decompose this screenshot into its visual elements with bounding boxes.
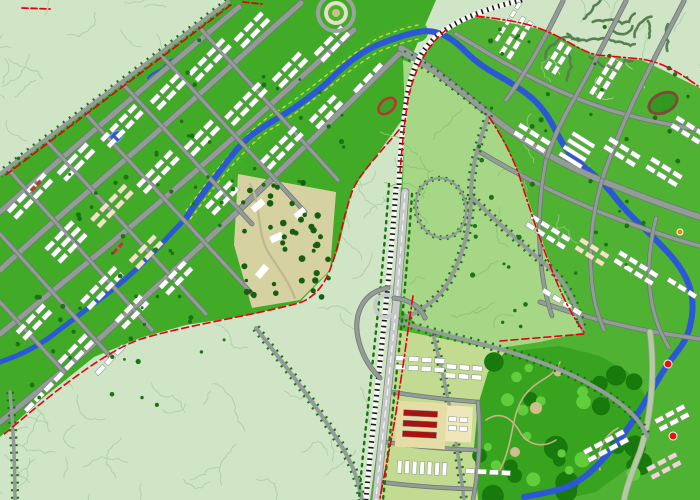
tree-icon xyxy=(299,278,305,284)
tree-icon xyxy=(479,158,484,163)
building xyxy=(404,461,409,474)
tree-icon xyxy=(342,145,345,148)
poi-marker-icon xyxy=(677,229,683,235)
tree-icon xyxy=(68,356,71,359)
tree-icon xyxy=(192,82,197,87)
tree-icon xyxy=(280,220,287,227)
tree-icon xyxy=(603,25,607,29)
tree-icon xyxy=(513,309,517,313)
tree-icon xyxy=(675,159,680,164)
tree-icon xyxy=(576,395,591,410)
tree-icon xyxy=(200,350,203,353)
tree-icon xyxy=(194,186,197,189)
tree-icon xyxy=(327,124,331,128)
map-canvas xyxy=(0,0,700,500)
tree-icon xyxy=(544,129,547,132)
tree-icon xyxy=(539,117,544,122)
tree-icon xyxy=(519,325,523,329)
tree-icon xyxy=(667,129,672,134)
building xyxy=(489,470,498,475)
tree-icon xyxy=(484,352,504,372)
tree-icon xyxy=(273,290,279,296)
tree-icon xyxy=(180,120,184,124)
building xyxy=(421,366,431,372)
tree-icon xyxy=(134,295,138,299)
tree-icon xyxy=(530,124,535,129)
tree-icon xyxy=(90,205,94,209)
building xyxy=(446,373,456,379)
building xyxy=(459,426,467,431)
tree-icon xyxy=(118,274,123,279)
tree-icon xyxy=(141,306,144,309)
tree-icon xyxy=(71,330,75,334)
tree-icon xyxy=(489,195,494,200)
tree-icon xyxy=(143,323,146,326)
tree-icon xyxy=(223,338,226,341)
tree-icon xyxy=(473,224,477,228)
tree-icon xyxy=(625,263,628,266)
tree-icon xyxy=(241,200,245,204)
tree-icon xyxy=(245,279,249,283)
tree-icon xyxy=(178,295,182,299)
boundary-snippet-topleft xyxy=(22,8,50,9)
tree-icon xyxy=(192,202,196,206)
building xyxy=(412,461,417,474)
tree-icon xyxy=(276,87,279,90)
tree-icon xyxy=(60,304,65,309)
tree-icon xyxy=(218,224,222,228)
building xyxy=(409,356,419,362)
tree-icon xyxy=(280,240,285,245)
building xyxy=(459,374,469,380)
building xyxy=(477,469,486,474)
tree-icon xyxy=(524,364,533,373)
tree-icon xyxy=(523,302,528,307)
building xyxy=(449,417,457,422)
plaza-center xyxy=(332,9,340,17)
tree-icon xyxy=(169,190,173,194)
building xyxy=(446,364,456,370)
tree-icon xyxy=(208,140,212,144)
building xyxy=(434,367,444,373)
tree-icon xyxy=(653,115,658,120)
tree-icon xyxy=(319,294,325,300)
tree-icon xyxy=(190,134,195,139)
tree-icon xyxy=(686,95,690,99)
tree-icon xyxy=(248,289,252,293)
building xyxy=(472,366,482,372)
tree-icon xyxy=(299,116,303,120)
tree-icon xyxy=(341,114,344,117)
district-red-buildings xyxy=(402,410,437,439)
tree-icon xyxy=(318,91,321,94)
tree-icon xyxy=(136,359,141,364)
tree-icon xyxy=(68,173,71,176)
forest-clearing-3 xyxy=(510,447,520,457)
tree-icon xyxy=(314,270,320,276)
tree-icon xyxy=(604,243,608,247)
tree-icon xyxy=(294,231,299,236)
tree-icon xyxy=(300,180,306,186)
tree-icon xyxy=(498,28,502,32)
tree-icon xyxy=(17,157,20,160)
tree-icon xyxy=(503,262,506,265)
tree-icon xyxy=(30,383,35,388)
tree-icon xyxy=(618,210,621,213)
tree-icon xyxy=(303,213,307,217)
building xyxy=(397,460,402,473)
tree-icon xyxy=(268,225,273,230)
tree-icon xyxy=(94,191,98,195)
tree-icon xyxy=(298,217,304,223)
tree-icon xyxy=(251,292,257,298)
tree-icon xyxy=(241,263,247,269)
tree-icon xyxy=(231,180,234,183)
building xyxy=(465,468,474,473)
tree-icon xyxy=(140,396,143,399)
tree-icon xyxy=(308,224,314,230)
building xyxy=(471,375,481,381)
tree-icon xyxy=(474,235,478,239)
tree-icon xyxy=(546,92,550,96)
tree-icon xyxy=(530,182,535,187)
tree-icon xyxy=(325,257,331,263)
tree-icon xyxy=(262,82,267,87)
tree-icon xyxy=(156,295,160,299)
tree-icon xyxy=(484,443,492,451)
tree-icon xyxy=(297,180,301,184)
tree-icon xyxy=(155,151,159,155)
tree-icon xyxy=(15,342,20,347)
tree-icon xyxy=(312,277,318,283)
tree-icon xyxy=(113,181,117,185)
tree-icon xyxy=(267,200,274,207)
tree-icon xyxy=(298,78,301,81)
tree-icon xyxy=(501,321,504,324)
building xyxy=(422,357,432,363)
tree-icon xyxy=(268,193,274,199)
tree-icon xyxy=(110,392,115,397)
poi-marker-icon xyxy=(669,432,677,440)
tree-icon xyxy=(501,393,514,406)
building xyxy=(434,462,439,475)
tree-icon xyxy=(35,295,40,300)
tree-icon xyxy=(673,72,677,76)
tree-icon xyxy=(188,320,192,324)
tree-icon xyxy=(262,75,266,79)
tree-icon xyxy=(231,187,236,192)
tree-icon xyxy=(488,38,493,43)
tree-icon xyxy=(517,235,522,240)
tree-icon xyxy=(507,265,511,269)
tree-icon xyxy=(589,113,592,116)
tree-icon xyxy=(625,223,630,228)
tree-icon xyxy=(593,62,596,65)
tree-icon xyxy=(78,307,82,311)
tree-icon xyxy=(155,403,159,407)
tree-icon xyxy=(169,249,173,253)
tree-icon xyxy=(511,372,522,383)
tree-icon xyxy=(299,255,306,262)
tree-icon xyxy=(318,234,323,239)
tree-icon xyxy=(128,336,133,341)
tree-icon xyxy=(124,175,129,180)
tree-icon xyxy=(500,52,504,56)
building xyxy=(408,365,418,371)
tree-icon xyxy=(110,355,114,359)
building xyxy=(435,358,445,364)
tree-icon xyxy=(206,175,209,178)
tree-icon xyxy=(625,200,629,204)
tree-icon xyxy=(197,38,201,42)
tree-icon xyxy=(490,107,493,110)
poi-marker-icon xyxy=(664,360,672,368)
tree-icon xyxy=(526,472,540,486)
building xyxy=(442,463,447,476)
tree-icon xyxy=(58,317,63,322)
master-plan-map xyxy=(0,0,700,500)
tree-icon xyxy=(185,70,190,75)
tree-icon xyxy=(477,145,481,149)
tree-icon xyxy=(594,230,598,234)
tree-icon xyxy=(592,397,610,415)
tree-icon xyxy=(314,242,321,249)
tree-icon xyxy=(514,37,517,40)
tree-icon xyxy=(606,365,626,385)
tree-icon xyxy=(156,183,159,186)
tree-icon xyxy=(111,252,114,255)
tree-icon xyxy=(283,247,288,252)
tree-icon xyxy=(470,272,475,277)
tree-icon xyxy=(154,247,158,251)
building xyxy=(427,462,432,475)
tree-icon xyxy=(271,183,276,188)
district-cream-plot xyxy=(445,405,473,442)
tree-icon xyxy=(37,396,41,400)
tree-icon xyxy=(282,234,287,239)
tree-icon xyxy=(242,229,247,234)
tree-icon xyxy=(247,188,253,194)
tree-icon xyxy=(641,221,645,225)
tree-icon xyxy=(557,449,565,457)
tree-icon xyxy=(339,139,344,144)
building xyxy=(419,461,424,474)
tree-icon xyxy=(123,358,126,361)
tree-icon xyxy=(528,40,531,43)
tree-icon xyxy=(253,167,256,170)
tree-icon xyxy=(491,460,501,470)
tree-icon xyxy=(624,137,628,141)
building xyxy=(460,417,468,422)
tree-icon xyxy=(626,373,643,390)
tree-icon xyxy=(565,466,574,475)
tree-icon xyxy=(77,216,82,221)
tree-icon xyxy=(588,179,592,183)
tree-icon xyxy=(220,201,224,205)
tree-icon xyxy=(315,212,321,218)
building xyxy=(459,365,469,371)
tree-icon xyxy=(600,88,604,92)
tree-icon xyxy=(289,201,294,206)
tree-icon xyxy=(188,315,193,320)
tree-icon xyxy=(272,282,276,286)
tree-icon xyxy=(262,183,266,187)
tree-icon xyxy=(51,349,55,353)
forest-clearing-1 xyxy=(530,402,542,414)
tree-icon xyxy=(312,249,316,253)
building xyxy=(501,470,510,475)
tree-icon xyxy=(121,234,126,239)
building xyxy=(448,426,456,431)
tree-icon xyxy=(574,271,577,274)
